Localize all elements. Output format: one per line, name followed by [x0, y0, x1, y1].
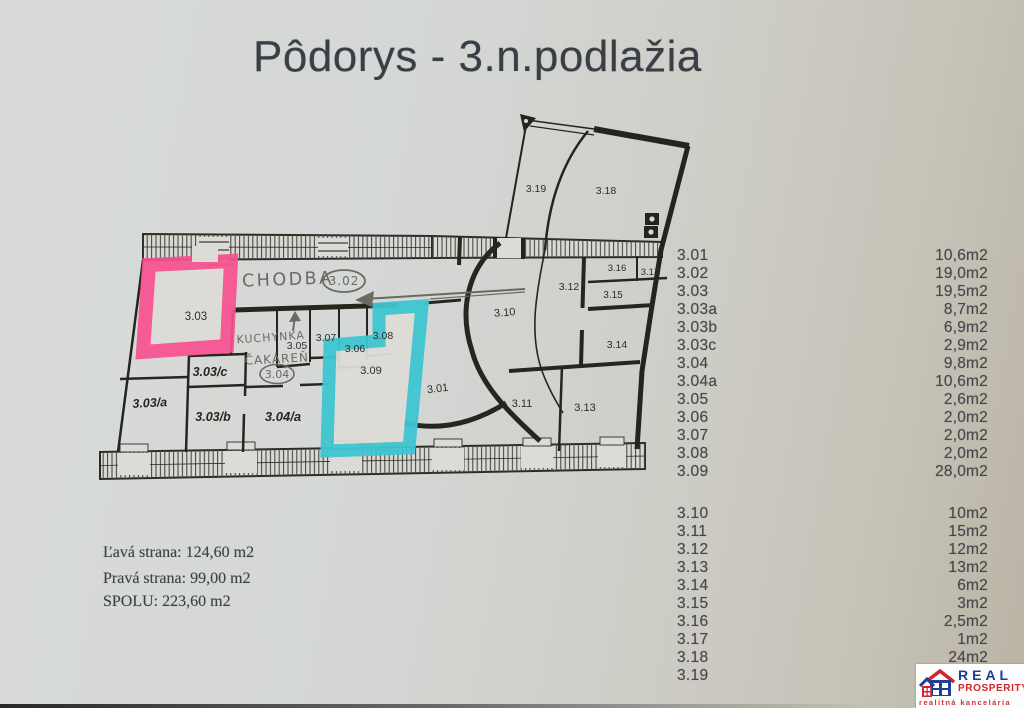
room-number: 3.04a: [677, 373, 717, 391]
area-row-3.04a: 3.04a10,6m2: [677, 373, 988, 391]
area-row-3.06: 3.062,0m2: [677, 409, 988, 427]
floor-plan-group: 3.193.183.03CHODBA3.023.053.073.063.08KU…: [100, 114, 689, 479]
area-row-3.09: 3.0928,0m2: [677, 463, 988, 481]
highlight-room-3.03: [143, 261, 231, 352]
room-number: 3.12: [677, 541, 708, 559]
area-row-3.03b: 3.03b6,9m2: [677, 319, 988, 337]
area-row-3.03a: 3.03a8,7m2: [677, 301, 988, 319]
area-row-3.07: 3.072,0m2: [677, 427, 988, 445]
plan-label-3.03/a: 3.03/a: [132, 395, 167, 411]
plan-label-3.03/c: 3.03/c: [193, 365, 228, 379]
plan-label-3.11: 3.11: [512, 398, 533, 410]
room-number: 3.03: [677, 283, 708, 301]
room-area: 1m2: [957, 631, 988, 649]
area-summary: Ľavá strana: 124,60 m2 Pravá strana: 99,…: [103, 544, 254, 610]
plan-label-3.07: 3.07: [316, 332, 337, 344]
summary-right-side: Pravá strana: 99,00 m2: [103, 570, 254, 587]
area-row-3.03c: 3.03c2,9m2: [677, 337, 988, 355]
area-row-3.17: 3.171m2: [677, 631, 988, 649]
area-list-block-1: 3.0110,6m23.0219,0m23.0319,5m23.03a8,7m2…: [677, 247, 988, 481]
room-number: 3.14: [677, 577, 708, 595]
room-area: 19,0m2: [935, 265, 988, 283]
plan-label-3.10: 3.10: [494, 306, 516, 319]
plan-label-3.03: 3.03: [185, 311, 207, 323]
room-area: 2,9m2: [944, 337, 988, 355]
door-opening: [192, 246, 218, 262]
room-area: 2,6m2: [944, 391, 988, 409]
room-area: 2,0m2: [944, 427, 988, 445]
area-row-3.11: 3.1115m2: [677, 523, 988, 541]
room-number: 3.02: [677, 265, 708, 283]
room-area: 10m2: [948, 505, 988, 523]
room-number: 3.07: [677, 427, 708, 445]
plan-label-3.17: 3.17: [641, 267, 660, 278]
area-row-3.10: 3.1010m2: [677, 505, 988, 523]
room-number: 3.08: [677, 445, 708, 463]
room-number: 3.16: [677, 613, 708, 631]
room-number: 3.03b: [677, 319, 717, 337]
house-icon: [919, 669, 955, 701]
corner-marker: [520, 114, 536, 132]
room-number: 3.10: [677, 505, 708, 523]
area-row-3.16: 3.162,5m2: [677, 613, 988, 631]
area-list-block-2: 3.1010m23.1115m23.1212m23.1313m23.146m23…: [677, 505, 988, 685]
plan-label-3.12: 3.12: [559, 281, 580, 293]
plan-label-3.04: 3.04: [265, 368, 290, 381]
room-number: 3.15: [677, 595, 708, 613]
plan-label-CHODBA: CHODBA: [242, 268, 334, 291]
area-row-3.05: 3.052,6m2: [677, 391, 988, 409]
room-area: 28,0m2: [935, 463, 988, 481]
room-area: 10,6m2: [935, 373, 988, 391]
plan-label-3.09: 3.09: [360, 365, 381, 377]
room-area: 13m2: [948, 559, 988, 577]
scanned-floorplan-page: Pôdorys - 3.n.podlažia: [0, 0, 1024, 708]
highlight-room-3.09: [327, 306, 422, 451]
area-row-3.15: 3.153m2: [677, 595, 988, 613]
area-row-3.01: 3.0110,6m2: [677, 247, 988, 265]
plan-label-3.08: 3.08: [373, 330, 394, 342]
room-area: 6,9m2: [944, 319, 988, 337]
logo-name-real: REAL: [958, 667, 1012, 683]
room-area: 12m2: [948, 541, 988, 559]
room-number: 3.03a: [677, 301, 717, 319]
room-number: 3.17: [677, 631, 708, 649]
area-row-3.03: 3.0319,5m2: [677, 283, 988, 301]
plan-label-3.06: 3.06: [345, 343, 366, 355]
room-number: 3.09: [677, 463, 708, 481]
area-row-3.04: 3.049,8m2: [677, 355, 988, 373]
room-area: 6m2: [957, 577, 988, 595]
area-row-3.12: 3.1212m2: [677, 541, 988, 559]
extension-rooms: [506, 114, 689, 250]
room-area: 3m2: [957, 595, 988, 613]
area-row-3.02: 3.0219,0m2: [677, 265, 988, 283]
room-area: 2,0m2: [944, 445, 988, 463]
room-area: 9,8m2: [944, 355, 988, 373]
plan-label-3.14: 3.14: [607, 339, 628, 351]
room-area: 2,5m2: [944, 613, 988, 631]
plan-label-3.15: 3.15: [603, 290, 623, 301]
photo-edge-shadow: [0, 704, 910, 708]
room-area: 15m2: [948, 523, 988, 541]
plan-label-3.16: 3.16: [608, 263, 627, 274]
room-number: 3.05: [677, 391, 708, 409]
room-area: 8,7m2: [944, 301, 988, 319]
room-number: 3.19: [677, 667, 708, 685]
room-number: 3.11: [677, 523, 707, 541]
plan-label-3.02: 3.02: [329, 274, 360, 288]
area-row-3.08: 3.082,0m2: [677, 445, 988, 463]
room-area: 19,5m2: [935, 283, 988, 301]
plan-label-3.13: 3.13: [574, 402, 595, 414]
plan-label-3.18: 3.18: [596, 185, 617, 197]
room-area: 2,0m2: [944, 409, 988, 427]
room-number: 3.03c: [677, 337, 716, 355]
summary-total: SPOLU: 223,60 m2: [103, 593, 254, 610]
logo-name-prosperity: PROSPERITY: [958, 683, 1024, 694]
room-number: 3.18: [677, 649, 708, 667]
logo-tagline: realitná kancelária: [919, 698, 1023, 707]
plan-label-3.01: 3.01: [426, 382, 449, 397]
room-number: 3.04: [677, 355, 708, 373]
summary-left-side: Ľavá strana: 124,60 m2: [103, 544, 254, 561]
plan-label-3.04/a: 3.04/a: [265, 409, 301, 424]
room-number: 3.01: [677, 247, 708, 265]
area-row-3.13: 3.1313m2: [677, 559, 988, 577]
room-number: 3.13: [677, 559, 708, 577]
window-opening: [318, 238, 348, 256]
area-row-3.14: 3.146m2: [677, 577, 988, 595]
plan-label-3.19: 3.19: [526, 183, 547, 195]
agency-logo: REAL PROSPERITY realitná kancelária: [916, 664, 1024, 708]
room-area: 10,6m2: [935, 247, 988, 265]
room-number: 3.06: [677, 409, 708, 427]
shaft-symbol: [644, 213, 659, 238]
door-opening: [497, 238, 521, 258]
plan-label-3.03/b: 3.03/b: [195, 410, 231, 424]
